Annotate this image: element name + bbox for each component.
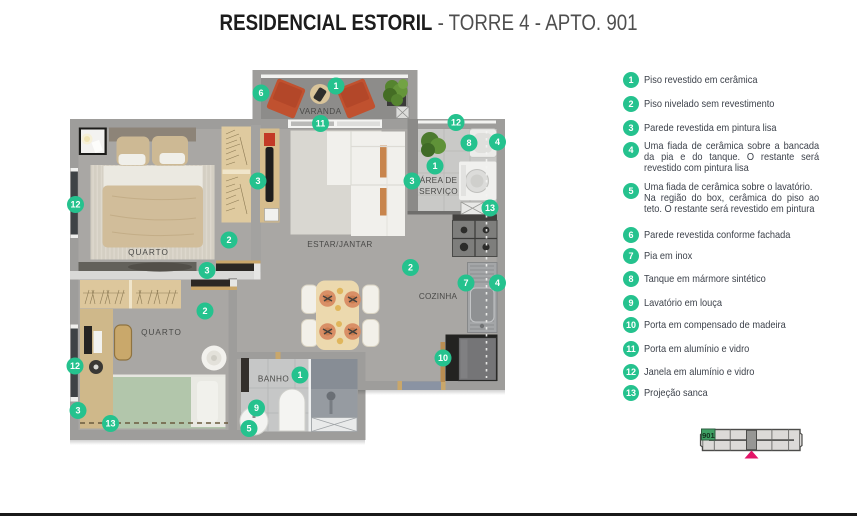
svg-text:12: 12 <box>70 361 80 371</box>
svg-text:BANHO: BANHO <box>258 375 289 384</box>
svg-text:2: 2 <box>202 306 207 316</box>
svg-text:9: 9 <box>254 403 259 413</box>
svg-text:ÁREA DE: ÁREA DE <box>420 175 458 185</box>
svg-text:13: 13 <box>485 203 495 213</box>
svg-text:ESTAR/JANTAR: ESTAR/JANTAR <box>307 240 373 249</box>
svg-text:4: 4 <box>495 278 500 288</box>
svg-text:2: 2 <box>226 235 231 245</box>
svg-text:6: 6 <box>258 88 263 98</box>
svg-text:SERVIÇO: SERVIÇO <box>419 187 458 196</box>
svg-text:VARANDA: VARANDA <box>299 107 341 116</box>
svg-text:901: 901 <box>702 431 715 440</box>
svg-text:2: 2 <box>408 263 413 273</box>
svg-text:3: 3 <box>75 406 80 416</box>
svg-text:12: 12 <box>70 200 80 210</box>
svg-text:1: 1 <box>297 370 302 380</box>
svg-text:10: 10 <box>438 353 448 363</box>
svg-text:3: 3 <box>255 176 260 186</box>
svg-text:5: 5 <box>246 424 251 434</box>
svg-text:QUARTO: QUARTO <box>128 248 169 257</box>
svg-text:1: 1 <box>333 81 338 91</box>
svg-text:11: 11 <box>316 119 326 129</box>
svg-text:QUARTO: QUARTO <box>141 328 182 337</box>
svg-text:12: 12 <box>451 118 461 128</box>
svg-text:8: 8 <box>466 138 471 148</box>
svg-text:7: 7 <box>463 278 468 288</box>
svg-text:COZINHA: COZINHA <box>419 292 458 301</box>
svg-text:3: 3 <box>409 176 414 186</box>
svg-text:4: 4 <box>495 137 500 147</box>
svg-text:3: 3 <box>204 266 209 276</box>
svg-text:1: 1 <box>432 161 437 171</box>
svg-text:13: 13 <box>105 419 115 429</box>
